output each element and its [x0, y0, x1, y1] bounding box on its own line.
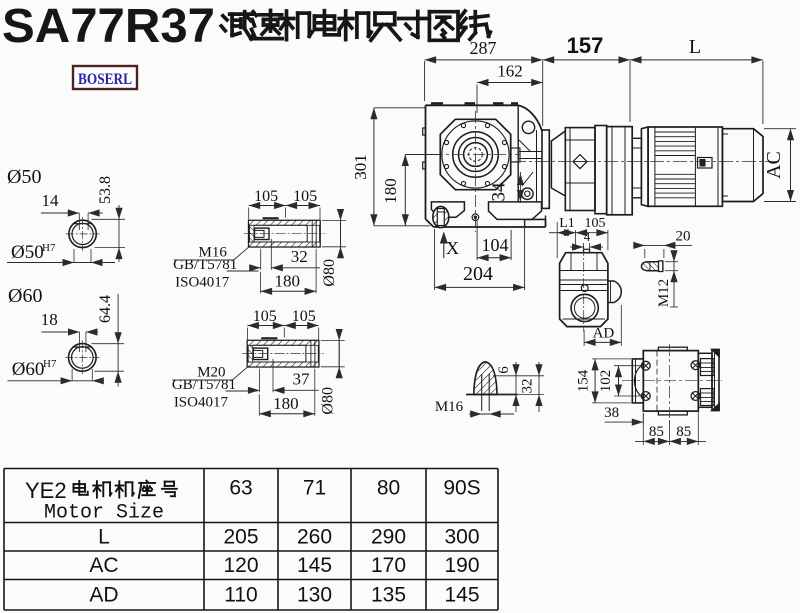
svg-text:105: 105 [254, 188, 278, 205]
svg-text:53.8: 53.8 [97, 176, 114, 204]
svg-text:105: 105 [253, 308, 277, 325]
svg-text:180: 180 [273, 394, 299, 413]
svg-text:X: X [446, 238, 459, 258]
svg-text:L: L [98, 526, 110, 549]
svg-text:130: 130 [297, 584, 332, 607]
svg-text:85: 85 [676, 424, 691, 440]
svg-text:85: 85 [649, 424, 664, 440]
svg-text:AC: AC [89, 554, 118, 577]
svg-text:71: 71 [303, 477, 326, 500]
svg-text:190: 190 [444, 554, 479, 577]
svg-text:64.4: 64.4 [97, 295, 114, 323]
svg-text:120: 120 [223, 554, 258, 577]
svg-text:180: 180 [381, 178, 400, 204]
svg-text:37: 37 [293, 369, 311, 388]
svg-text:H7: H7 [42, 242, 56, 254]
svg-text:63: 63 [229, 477, 252, 500]
svg-text:Motor Size: Motor Size [44, 502, 164, 525]
svg-text:145: 145 [297, 554, 332, 577]
svg-text:290: 290 [371, 526, 406, 549]
svg-text:260: 260 [297, 526, 332, 549]
svg-text:AD: AD [593, 326, 615, 342]
svg-text:AC: AC [763, 151, 785, 179]
svg-text:Ø80: Ø80 [321, 259, 338, 287]
svg-text:Ø50: Ø50 [7, 166, 41, 188]
svg-text:AD: AD [89, 584, 118, 607]
svg-text:H7: H7 [43, 358, 57, 370]
svg-text:110: 110 [224, 584, 257, 607]
svg-text:287: 287 [470, 38, 497, 58]
svg-text:L1: L1 [559, 216, 575, 231]
svg-text:162: 162 [497, 62, 523, 81]
svg-text:105: 105 [293, 188, 317, 205]
svg-text:145: 145 [444, 584, 479, 607]
svg-text:154: 154 [576, 369, 592, 392]
svg-text:300: 300 [444, 526, 479, 549]
svg-text:135: 135 [371, 584, 406, 607]
svg-text:205: 205 [223, 526, 258, 549]
svg-text:Ø60: Ø60 [8, 285, 42, 307]
svg-text:M16: M16 [435, 399, 464, 415]
svg-text:104: 104 [482, 235, 509, 255]
svg-text:32: 32 [291, 247, 308, 266]
svg-text:157: 157 [567, 33, 604, 58]
svg-text:BOSERL: BOSERL [78, 71, 132, 88]
svg-text:YE2: YE2 [25, 478, 67, 503]
svg-text:M12: M12 [656, 279, 672, 307]
svg-text:18: 18 [41, 310, 58, 329]
svg-text:20: 20 [676, 229, 691, 245]
svg-text:38: 38 [604, 405, 619, 421]
svg-text:170: 170 [371, 554, 406, 577]
svg-text:6: 6 [496, 366, 512, 374]
svg-text:102: 102 [598, 370, 614, 393]
svg-text:SA77R37: SA77R37 [2, 0, 215, 53]
svg-text:32: 32 [520, 379, 536, 394]
svg-text:14: 14 [42, 191, 60, 210]
svg-text:Ø60: Ø60 [12, 359, 45, 380]
svg-text:L: L [689, 36, 701, 58]
svg-text:80: 80 [377, 477, 400, 500]
svg-text:Ø80: Ø80 [320, 387, 337, 415]
svg-text:4: 4 [584, 229, 591, 244]
svg-text:204: 204 [463, 263, 493, 285]
svg-text:90S: 90S [443, 477, 480, 500]
svg-text:ISO4017: ISO4017 [174, 395, 229, 411]
svg-text:ISO4017: ISO4017 [175, 275, 230, 291]
svg-text:34: 34 [489, 182, 510, 202]
svg-text:Ø50: Ø50 [11, 242, 44, 263]
svg-text:301: 301 [351, 154, 370, 180]
svg-text:105: 105 [292, 308, 316, 325]
svg-text:180: 180 [274, 271, 300, 290]
